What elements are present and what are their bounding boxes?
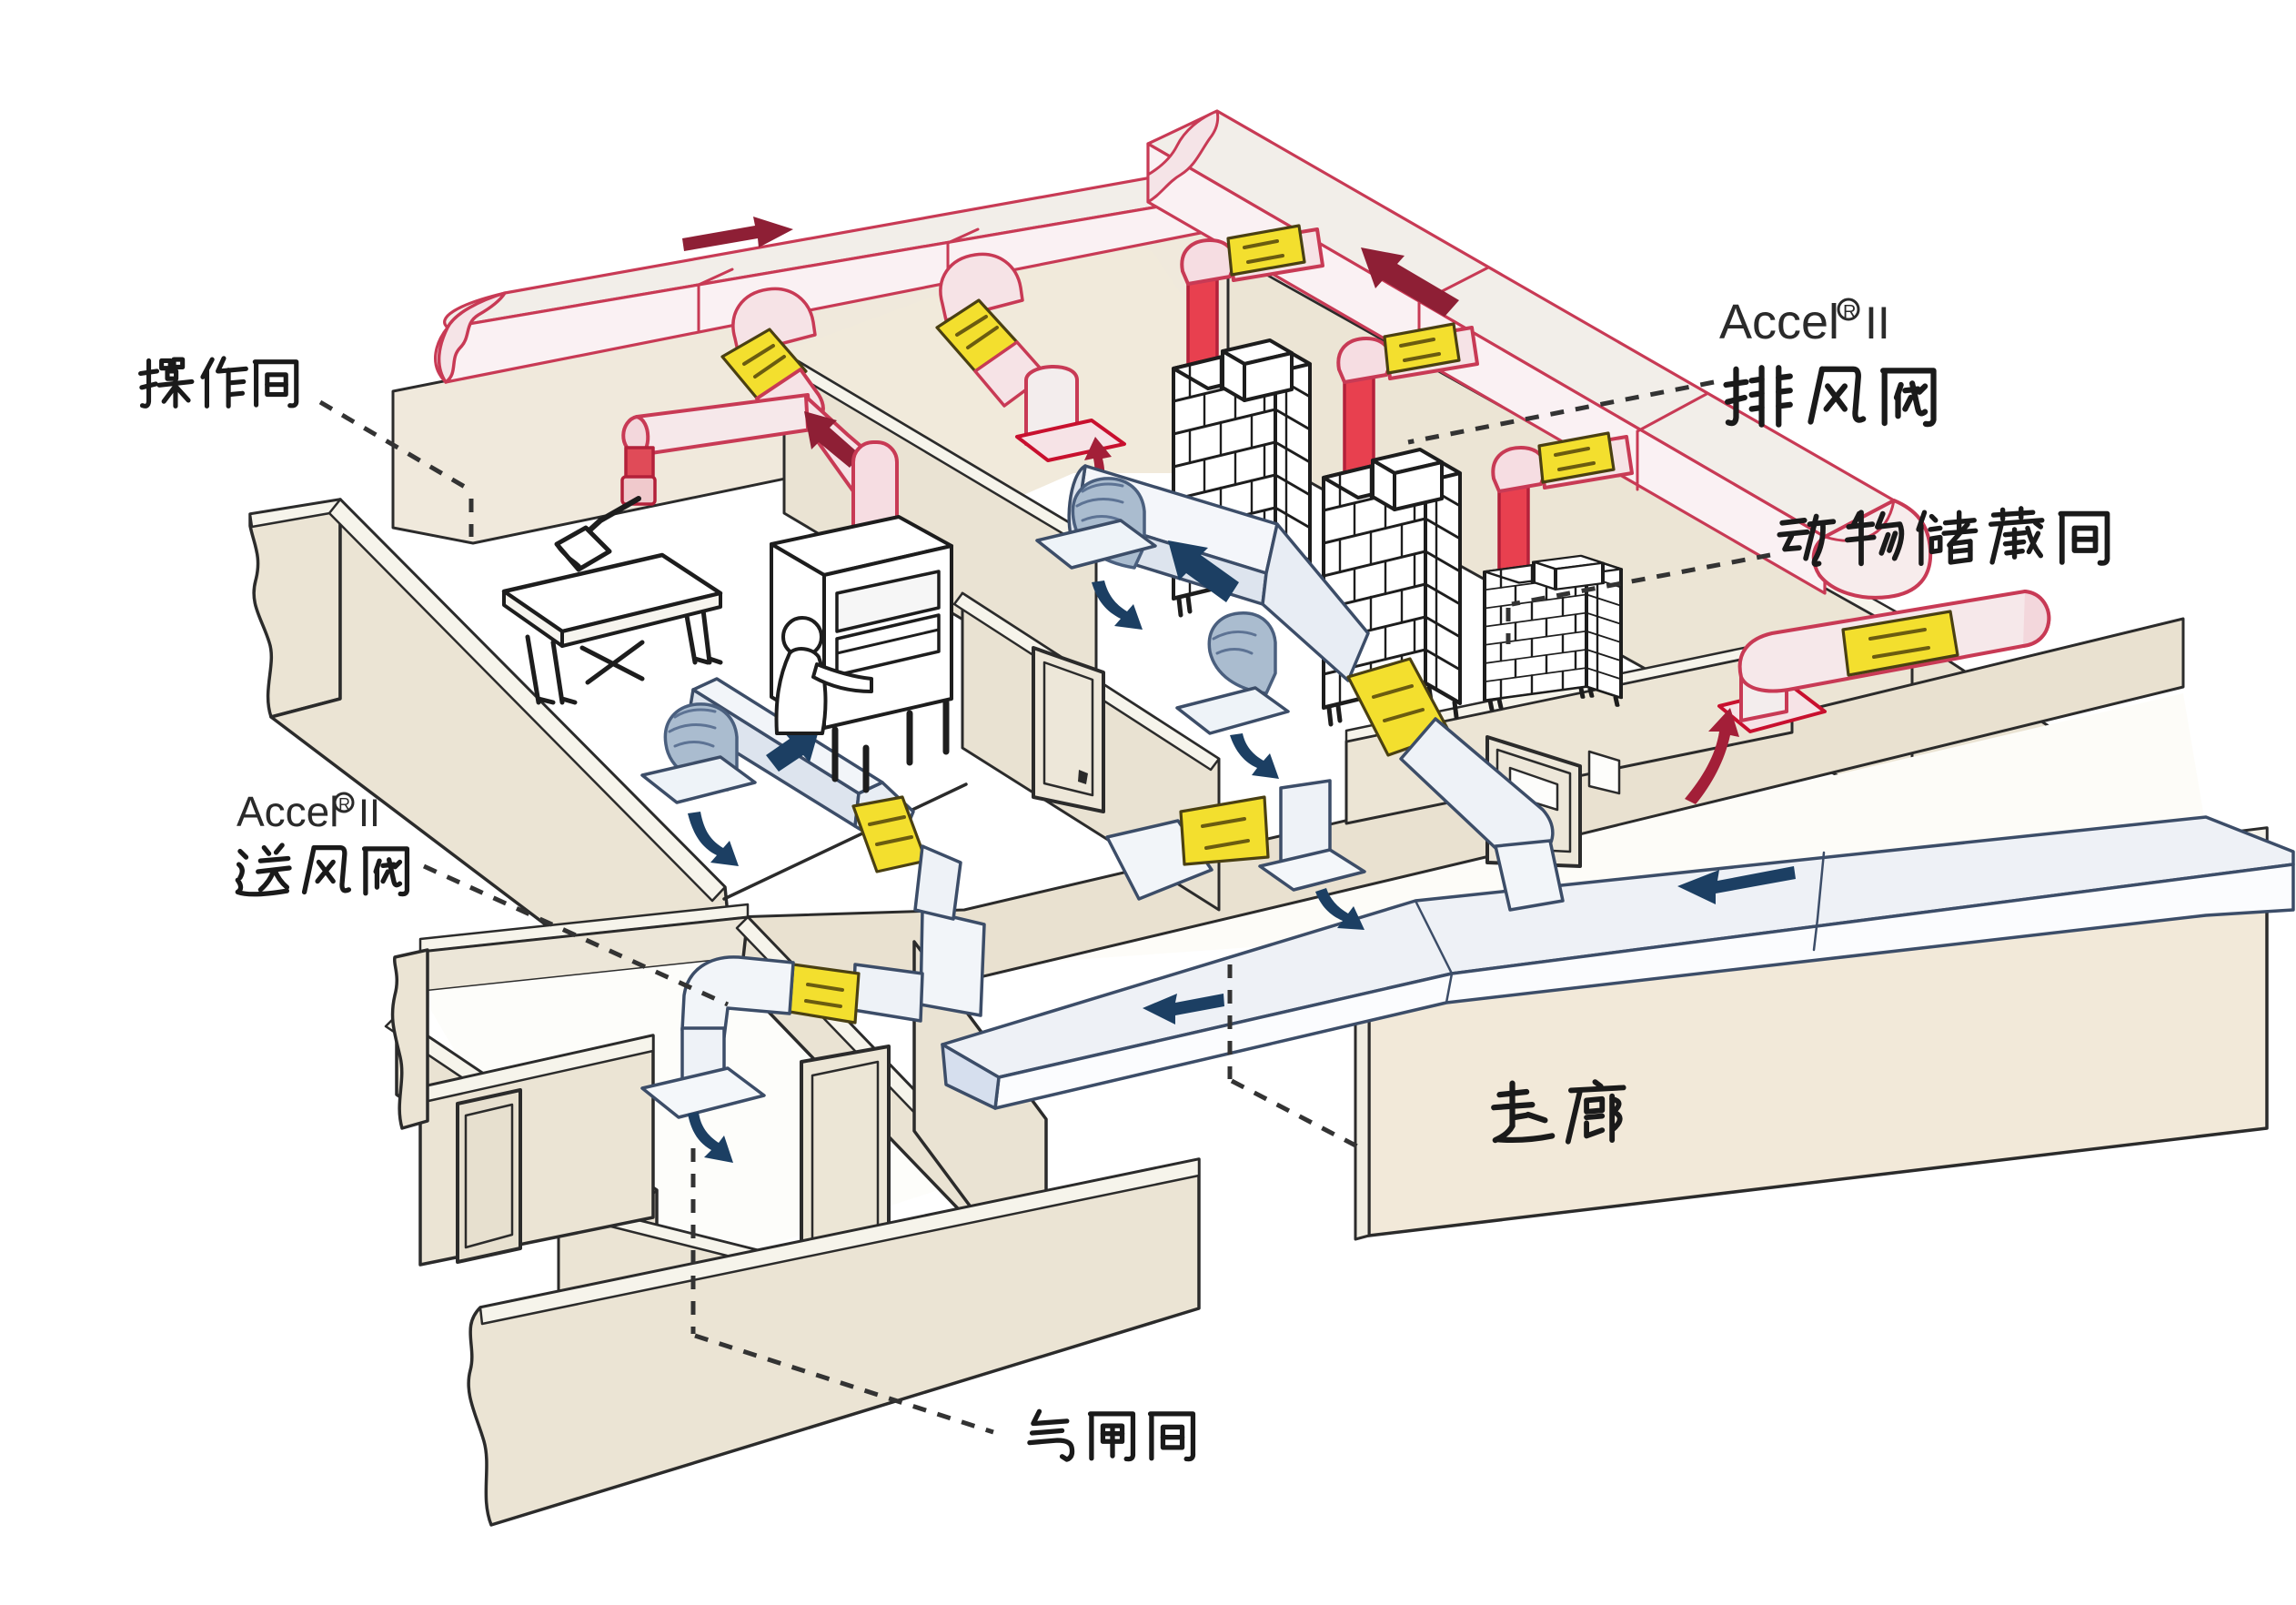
svg-text:II: II — [1865, 298, 1890, 348]
svg-text:R: R — [338, 795, 350, 813]
svg-text:R: R — [1843, 302, 1856, 322]
svg-text:Accel: Accel — [1719, 295, 1839, 349]
svg-text:Accel: Accel — [237, 788, 338, 835]
svg-text:II: II — [358, 792, 380, 835]
